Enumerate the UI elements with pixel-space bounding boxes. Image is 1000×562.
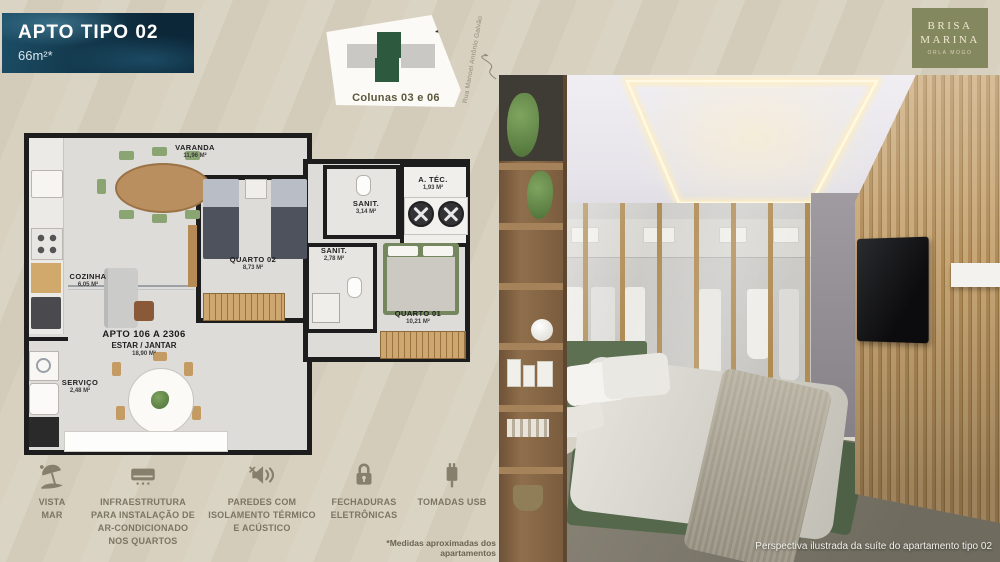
- double-bed: [383, 243, 459, 315]
- chair: [116, 406, 125, 420]
- pillow: [388, 246, 418, 256]
- chair: [152, 147, 167, 156]
- sofa: [104, 268, 138, 328]
- acoustic-insulation-icon: [247, 460, 277, 490]
- books: [507, 419, 549, 437]
- room-label-servico: SERVIÇO 2,48 M²: [62, 378, 98, 394]
- building-wing-right: [401, 44, 435, 68]
- amenity-item-tomadas-usb: TOMADAS USB: [397, 460, 507, 509]
- room-name: A. TÉC.: [418, 175, 447, 184]
- vase: [537, 361, 553, 387]
- toilet: [356, 175, 371, 196]
- room-name: SANIT.: [353, 199, 379, 208]
- twin-bed: [271, 179, 307, 259]
- shelf-board: [499, 283, 563, 290]
- room-area: 8,73 M²: [230, 265, 276, 271]
- floating-shelf: [951, 263, 1000, 287]
- title-banner: APTO TIPO 02 66m²*: [2, 13, 194, 73]
- vase: [507, 359, 521, 387]
- highlighted-column-03: [377, 32, 401, 58]
- shelf-board: [499, 163, 563, 170]
- chair: [97, 179, 106, 194]
- brand-tagline: ORLA MOGO: [928, 50, 973, 56]
- pillow: [601, 352, 670, 400]
- chair: [119, 210, 134, 219]
- washing-machine: [29, 351, 59, 381]
- site-plan: Colunas 03 e 06: [315, 12, 477, 118]
- amenity-label: TOMADAS USB: [397, 496, 507, 509]
- room-name: SERVIÇO: [62, 378, 98, 387]
- highlighted-column-06: [375, 58, 399, 82]
- shelf-board: [499, 405, 563, 412]
- room-name: QUARTO 01: [395, 309, 441, 318]
- room-label-sanit1: SANIT. 3,14 M²: [353, 199, 379, 215]
- shelf-board: [499, 467, 563, 474]
- toilet: [347, 277, 362, 298]
- unit-and-living-label: APTO 106 A 2306 ESTAR / JANTAR 18,90 M²: [102, 329, 185, 357]
- bedroom2-furniture: [203, 179, 307, 261]
- room-name: COZINHA: [70, 272, 107, 281]
- floor-plan: VARANDA 11,96 M² COZINHA 6,05 M² QUARTO …: [20, 125, 472, 457]
- photo-caption: Perspectiva ilustrada da suíte do aparta…: [712, 541, 992, 552]
- page-title: APTO TIPO 02: [18, 22, 158, 44]
- sideboard: [64, 431, 228, 452]
- room-label-atec: A. TÉC. 1,93 M²: [418, 175, 447, 191]
- shelf-board: [499, 223, 563, 230]
- unit-number-label: APTO 106 A 2306: [102, 329, 185, 340]
- tv-screen: [857, 237, 929, 344]
- chair: [184, 362, 193, 376]
- vase: [523, 365, 535, 387]
- room-area: 18,90 M²: [102, 351, 185, 357]
- nightstand: [245, 179, 267, 199]
- laundry-sink: [29, 383, 59, 415]
- usb-outlet-icon: [437, 460, 467, 490]
- brochure-page: { "header": {"title": "APTO TIPO 02", "s…: [0, 0, 1000, 562]
- suite-perspective-photo: Perspectiva ilustrada da suíte do aparta…: [499, 75, 1000, 562]
- room-label-sanit2: SANIT. 2,78 M²: [321, 246, 347, 262]
- page-subtitle: 66m²*: [18, 48, 53, 63]
- room-label-quarto02: QUARTO 02 8,73 M²: [230, 255, 276, 271]
- dining-table-oval: [105, 155, 217, 215]
- chair: [192, 406, 201, 420]
- room-area: 3,14 M²: [353, 209, 379, 215]
- laundry-cabinet: [29, 417, 59, 447]
- room-name: VARANDA: [175, 143, 215, 152]
- chair: [185, 210, 200, 219]
- bedroom2-wardrobe: [203, 293, 285, 321]
- room-area: 10,21 M²: [395, 319, 441, 325]
- site-plan-caption: Colunas 03 e 06: [321, 92, 471, 104]
- trailing-plant: [527, 171, 553, 219]
- room-label-quarto01: QUARTO 01 10,21 M²: [395, 309, 441, 325]
- washer-door: [36, 358, 51, 373]
- counter-wood-section: [31, 263, 61, 293]
- armchair: [134, 301, 154, 321]
- brand-logo: BRISA MARINA ORLA MOGO: [912, 8, 988, 68]
- fridge: [31, 170, 63, 198]
- brand-name: BRISA MARINA: [920, 20, 980, 48]
- shower-tray: [312, 293, 340, 323]
- cooktop: [31, 228, 63, 260]
- sphere-lamp: [531, 319, 553, 341]
- chair: [112, 362, 121, 376]
- pillow: [423, 246, 453, 256]
- twin-bed: [203, 179, 239, 259]
- duvet: [387, 257, 455, 311]
- chair: [152, 214, 167, 223]
- basket: [513, 485, 543, 511]
- room-label-varanda: VARANDA 11,96 M²: [175, 143, 215, 159]
- electronic-lock-icon: [349, 460, 379, 490]
- kitchen-appliance: [31, 297, 61, 329]
- room-area: 2,48 M²: [62, 388, 98, 394]
- measurements-footnote: *Medidas aproximadas dos apartamentos: [330, 538, 496, 558]
- room-area: 2,78 M²: [321, 256, 347, 262]
- shelf-board: [499, 343, 563, 350]
- room-name: SANIT.: [321, 246, 347, 255]
- north-arrow-icon: [433, 20, 449, 36]
- shelving-unit: [499, 75, 567, 562]
- round-dining-table: [120, 360, 200, 440]
- table-top: [115, 163, 211, 213]
- chair: [119, 151, 134, 160]
- air-conditioner-icon: [128, 460, 158, 490]
- wall: [24, 337, 68, 341]
- room-area: 1,93 M²: [418, 185, 447, 191]
- room-name: ESTAR / JANTAR: [102, 341, 185, 350]
- ac-condenser-fan: [408, 201, 434, 227]
- tv-panel: [188, 225, 197, 287]
- room-name: QUARTO 02: [230, 255, 276, 264]
- bedroom1-wardrobe: [380, 331, 466, 359]
- room-label-cozinha: COZINHA 6,05 M²: [70, 272, 107, 288]
- room-area: 11,96 M²: [175, 153, 215, 159]
- room-area: 6,05 M²: [70, 282, 107, 288]
- ac-condenser-fan: [438, 201, 464, 227]
